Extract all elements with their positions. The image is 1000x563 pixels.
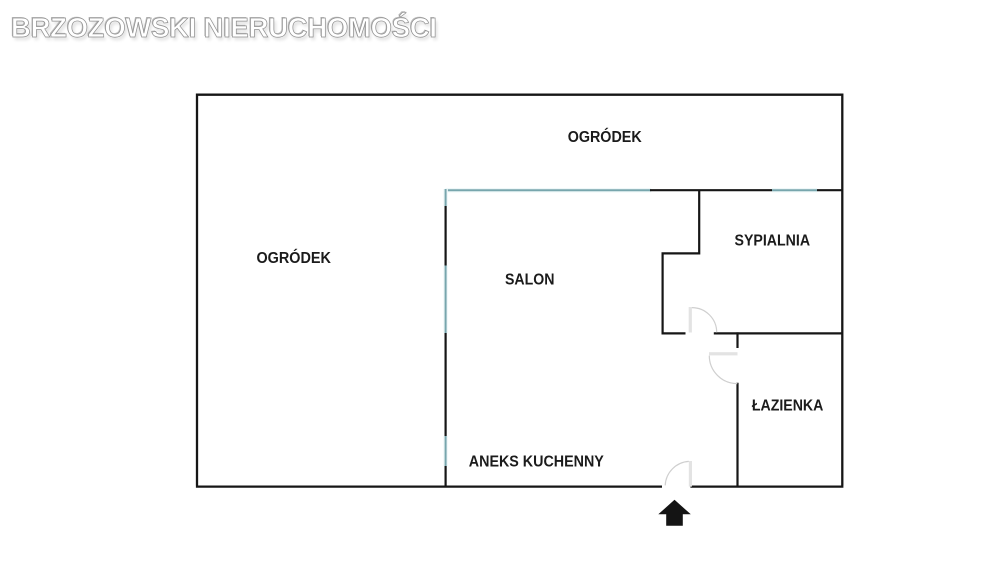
svg-text:ŁAZIENKA: ŁAZIENKA [752, 398, 824, 415]
svg-text:OGRÓDEK: OGRÓDEK [256, 249, 331, 267]
svg-text:SYPIALNIA: SYPIALNIA [735, 232, 811, 249]
svg-text:OGRÓDEK: OGRÓDEK [568, 128, 642, 146]
svg-text:SALON: SALON [505, 272, 555, 289]
svg-text:ANEKS KUCHENNY: ANEKS KUCHENNY [469, 454, 605, 471]
